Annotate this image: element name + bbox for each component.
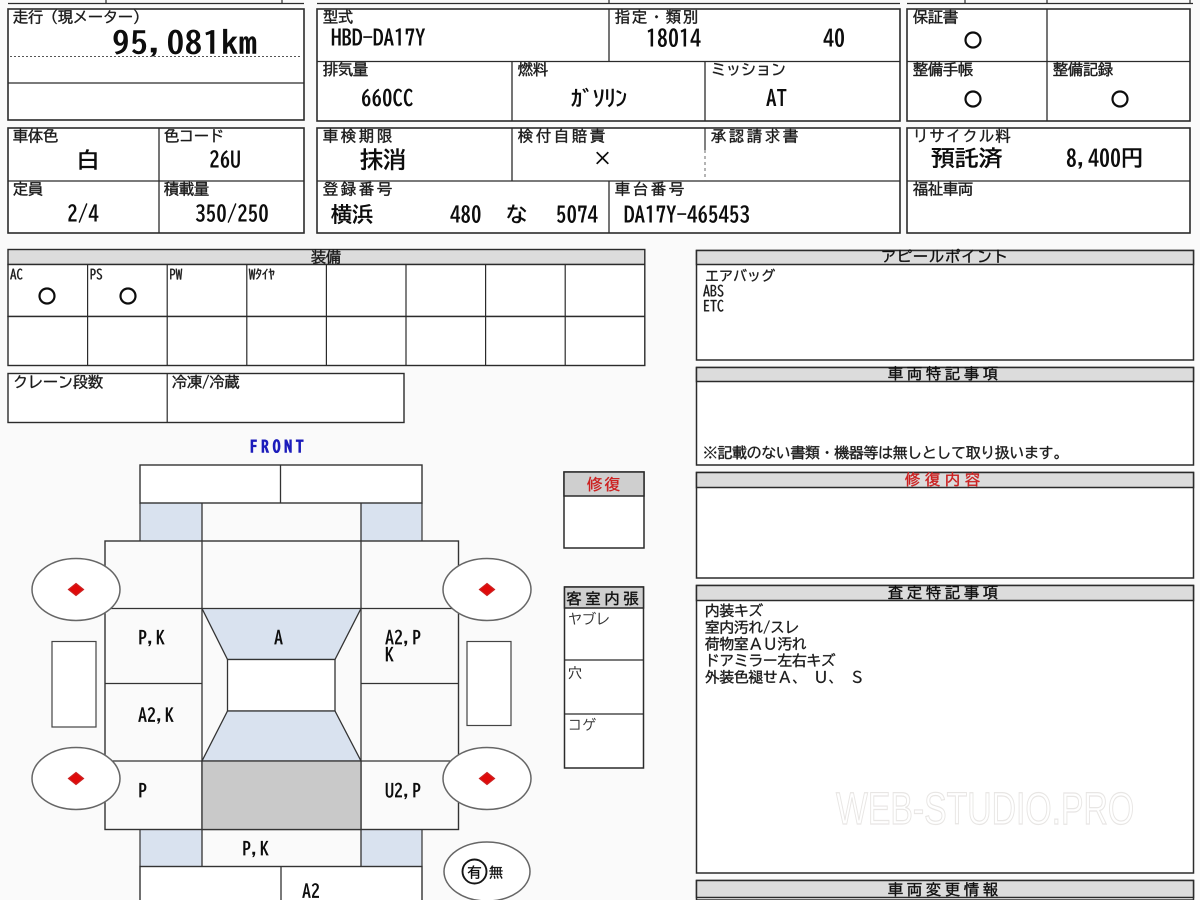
svg-text:WEB-STUDIO.PRO: WEB-STUDIO.PRO	[836, 784, 1134, 834]
